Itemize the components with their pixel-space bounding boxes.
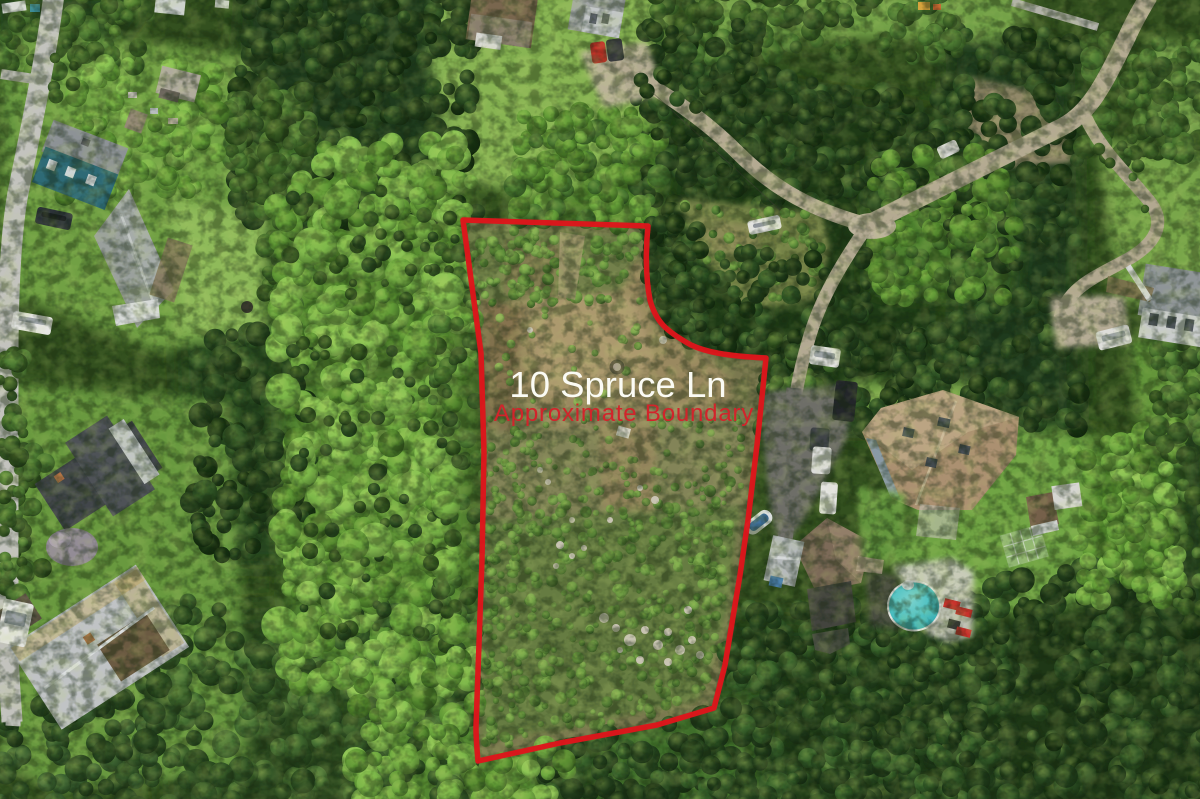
svg-text:10 Spruce Ln: 10 Spruce Ln [509, 364, 726, 405]
svg-text:Approximate Boundary: Approximate Boundary [494, 400, 754, 427]
